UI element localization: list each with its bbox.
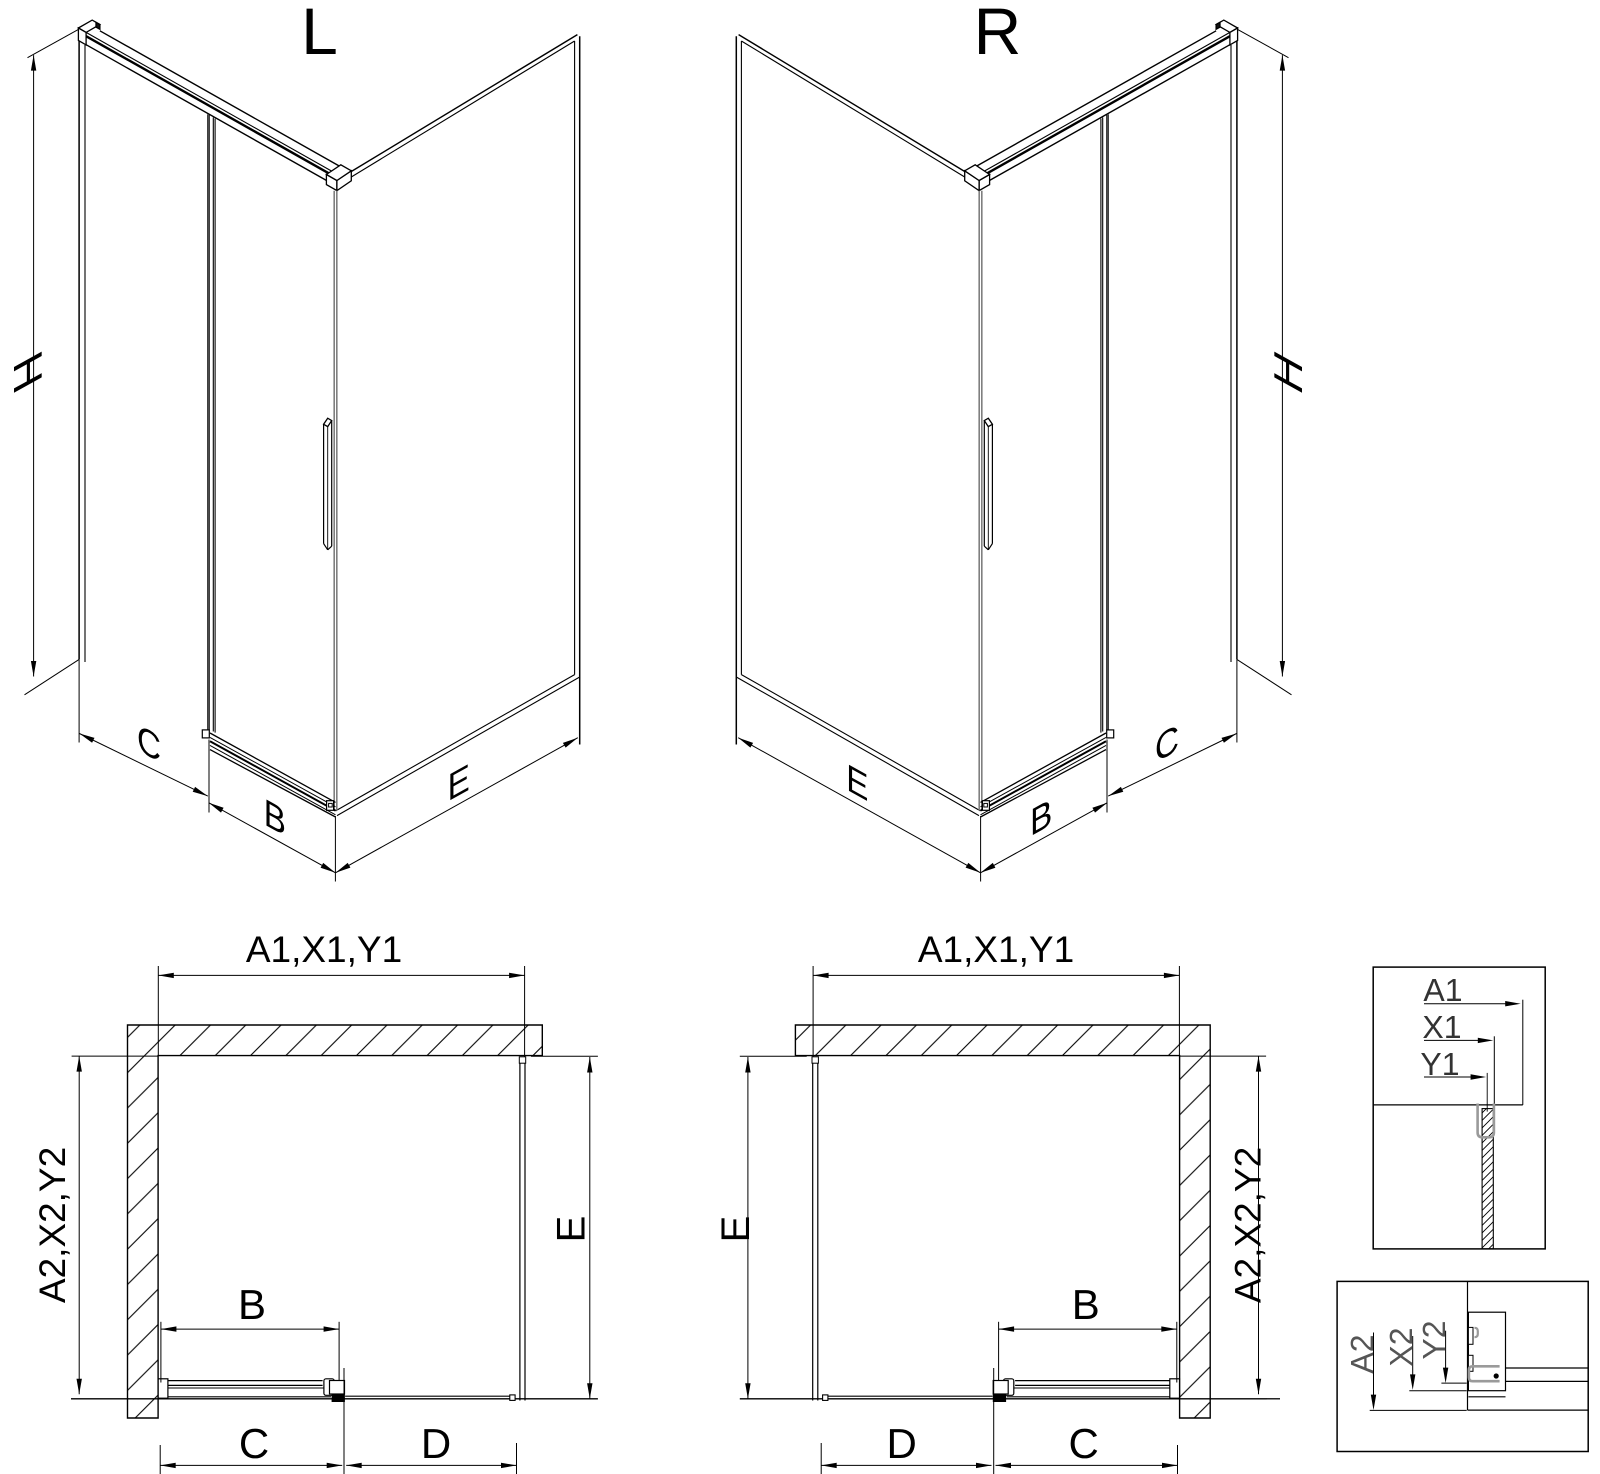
svg-text:E: E (549, 1216, 593, 1243)
svg-text:A1,X1,Y1: A1,X1,Y1 (246, 929, 402, 970)
svg-text:B: B (238, 1281, 266, 1328)
svg-text:E: E (714, 1216, 758, 1243)
svg-text:X2: X2 (1383, 1327, 1419, 1366)
svg-text:D: D (887, 1420, 917, 1467)
svg-text:A2,X2,Y2: A2,X2,Y2 (1228, 1147, 1269, 1303)
svg-text:D: D (421, 1420, 451, 1467)
svg-text:R: R (974, 0, 1022, 68)
svg-text:X1: X1 (1422, 1009, 1461, 1045)
svg-text:C: C (1069, 1420, 1099, 1467)
svg-text:B: B (1072, 1281, 1100, 1328)
svg-text:C: C (239, 1420, 269, 1467)
svg-text:A2,X2,Y2: A2,X2,Y2 (32, 1147, 73, 1303)
svg-text:A2: A2 (1344, 1334, 1380, 1373)
svg-text:A1: A1 (1423, 972, 1462, 1008)
svg-text:L: L (301, 0, 338, 68)
svg-text:Y2: Y2 (1416, 1320, 1452, 1359)
svg-text:A1,X1,Y1: A1,X1,Y1 (918, 929, 1074, 970)
